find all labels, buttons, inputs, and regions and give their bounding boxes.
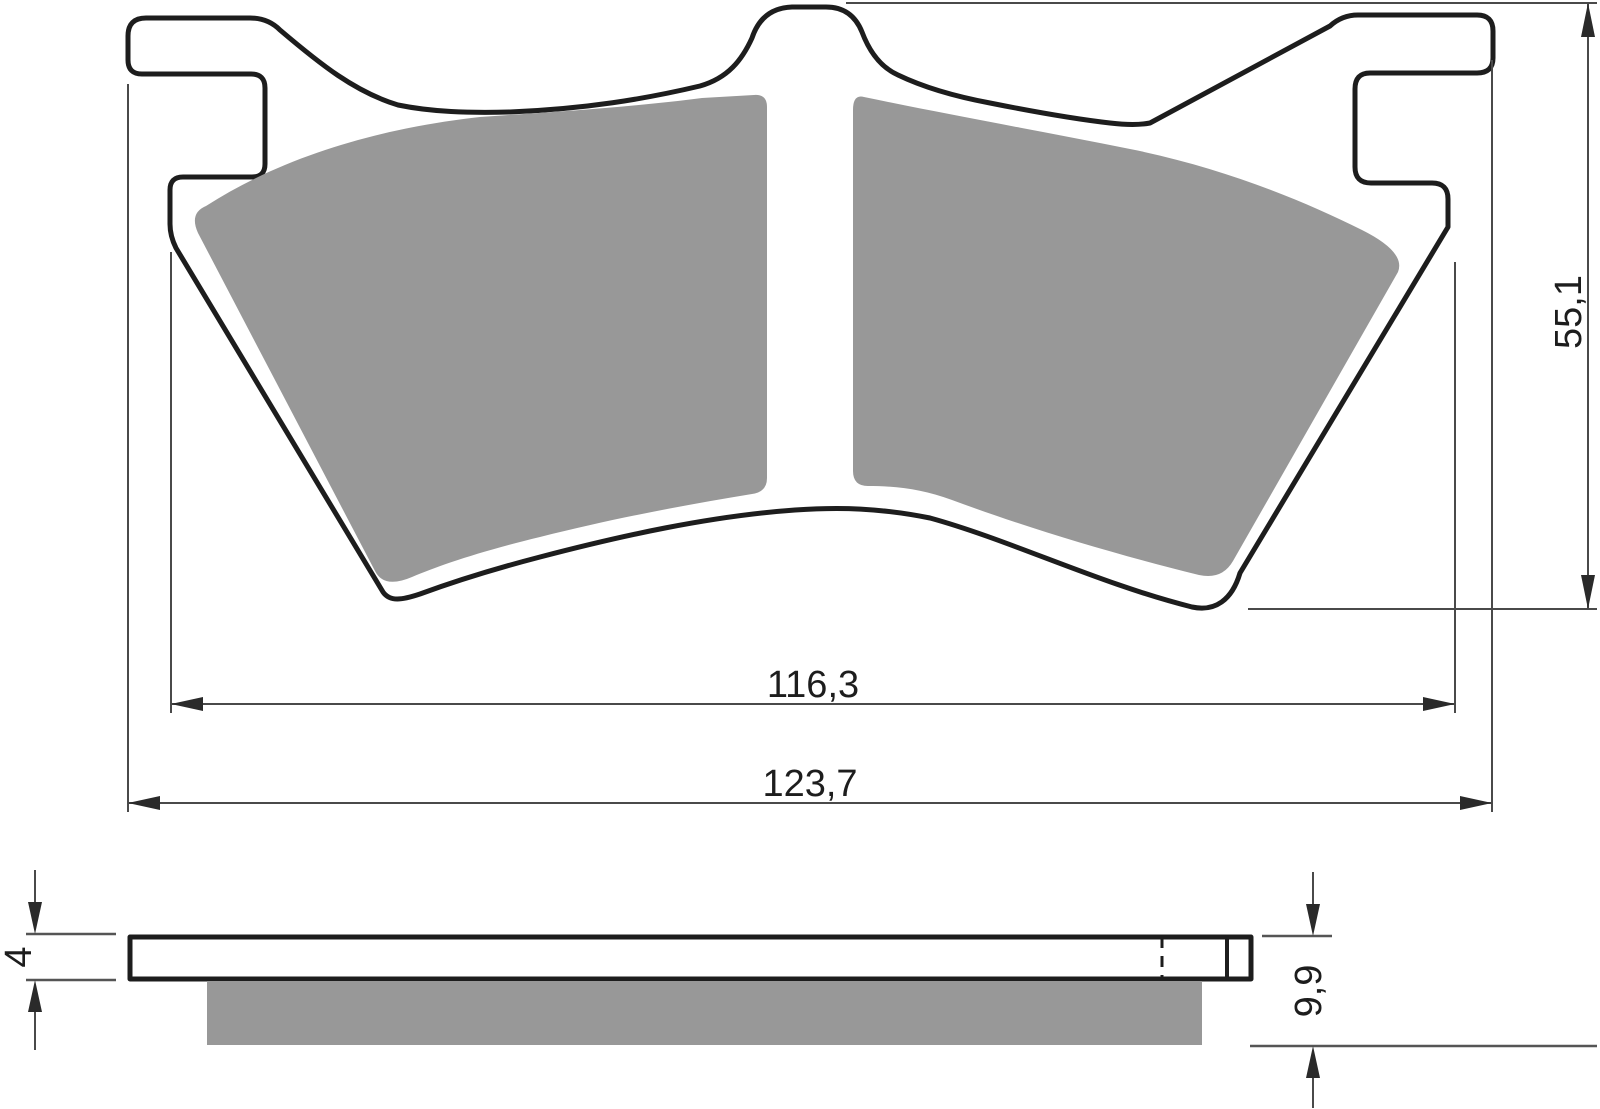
brake-pad-drawing: 116,3 123,7 55,1 4 9,9 bbox=[0, 0, 1600, 1109]
drawing-canvas: 116,3 123,7 55,1 4 9,9 bbox=[0, 0, 1600, 1109]
sideview-backplate bbox=[130, 937, 1251, 979]
label-backplate-thickness: 4 bbox=[0, 946, 40, 967]
sideview-friction-material bbox=[207, 981, 1202, 1045]
arrow-overall-width-right bbox=[1460, 796, 1492, 810]
arrow-height-top bbox=[1581, 3, 1595, 37]
arrow-inner-width-right bbox=[1423, 697, 1455, 711]
arrow-total-bottom bbox=[1306, 1046, 1320, 1078]
label-inner-width: 116,3 bbox=[767, 664, 859, 706]
arrow-height-bottom bbox=[1581, 575, 1595, 609]
label-overall-width: 123,7 bbox=[762, 763, 857, 805]
arrow-thickness-top bbox=[28, 902, 42, 934]
arrow-total-top bbox=[1306, 904, 1320, 936]
label-total-thickness: 9,9 bbox=[1288, 965, 1330, 1018]
label-height: 55,1 bbox=[1548, 275, 1590, 349]
arrow-overall-width-left bbox=[128, 796, 160, 810]
arrow-thickness-bottom bbox=[28, 980, 42, 1012]
arrow-inner-width-left bbox=[171, 697, 203, 711]
